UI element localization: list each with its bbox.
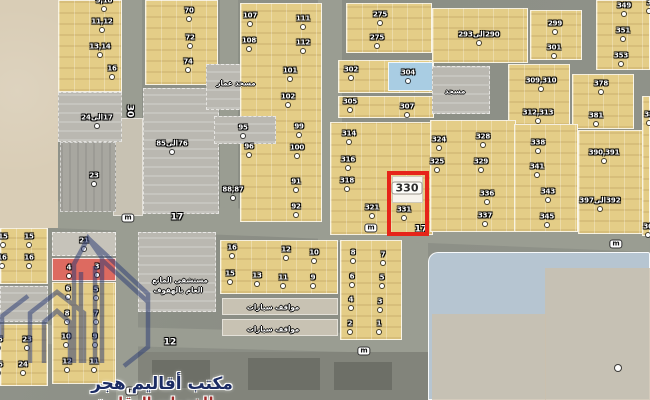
parcel-label: 13,14 (89, 44, 110, 51)
parcel-marker-dot (25, 346, 29, 350)
parcel-marker-dot (294, 188, 298, 192)
parcel-marker-dot (619, 62, 623, 66)
parcel-label: 23 (89, 173, 98, 180)
parcel-marker-dot (286, 103, 290, 107)
parcel-label: 316 (341, 157, 355, 164)
parcel-label: 100 (290, 145, 304, 152)
parcel-label: 101 (283, 68, 297, 75)
parcel-marker-dot (378, 308, 382, 312)
parcel-marker-dot (602, 159, 606, 163)
street-label: 12 (164, 339, 177, 348)
parcel-label: 9 (311, 275, 316, 282)
parcel-label: 16 (24, 255, 33, 262)
place-label: مسجد (445, 89, 466, 96)
parcel-marker-dot (248, 22, 252, 26)
parcel-label: 299 (548, 21, 562, 28)
parcel-marker-dot (351, 259, 355, 263)
parcel-marker-dot (477, 41, 481, 45)
parcel-marker-dot (82, 247, 86, 251)
map-block (220, 240, 338, 294)
parcel-marker-dot (301, 25, 305, 29)
parcel-label: 4 (67, 265, 72, 272)
parcel-label: 21 (79, 238, 88, 245)
parcel-label: 7 (381, 252, 386, 259)
parcel-marker-dot (65, 320, 69, 324)
parcel-label: 337 (478, 213, 492, 220)
map-block (578, 130, 650, 234)
parcel-marker-dot (311, 284, 315, 288)
parcel-label: 312,313 (523, 110, 553, 117)
parcel-marker-dot (0, 264, 4, 268)
parcel-marker-dot (92, 182, 96, 186)
parcel-marker-dot (65, 368, 69, 372)
parcel-marker-dot (94, 296, 98, 300)
parcel-label: 392الى397 (579, 198, 620, 205)
parcel-marker-dot (100, 28, 104, 32)
parcel-marker-dot (188, 44, 192, 48)
parcel-marker-dot (297, 133, 301, 137)
parcel-marker-dot (92, 368, 96, 372)
parcel-label: 96 (244, 144, 253, 151)
parcel-marker-dot (348, 108, 352, 112)
parcel-label: 7 (94, 311, 99, 318)
parcel-marker-dot (381, 261, 385, 265)
parcel-marker-dot (377, 330, 381, 334)
parcel-label: 9 (93, 334, 98, 341)
map-block (596, 0, 650, 70)
place-label: مسجد عمار (216, 81, 255, 88)
parcel-label: 70 (184, 8, 193, 15)
parcel-label: 4 (349, 297, 354, 304)
map-block (334, 362, 392, 390)
place-label: مواقف سيارات (247, 305, 299, 312)
place-label: العام بالهفوف (153, 288, 202, 295)
parcel-marker-dot (231, 196, 235, 200)
parcel-label: 16 (0, 255, 7, 262)
parcel-label: 99 (294, 124, 303, 131)
parcel-label: 111 (296, 16, 310, 23)
street-label: 17 (171, 214, 184, 223)
parcel-label: 351 (616, 28, 630, 35)
parcel-marker-dot (370, 214, 374, 218)
street-m-marker: m (122, 215, 133, 222)
parcel-label: 304 (401, 70, 415, 77)
parcel-marker-dot (479, 168, 483, 172)
parcel-marker-dot (348, 330, 352, 334)
parcel-label: 309,310 (526, 78, 556, 85)
parcel-label: 102 (281, 94, 295, 101)
parcel-label: 92 (291, 204, 300, 211)
parcel-marker-dot (646, 233, 650, 237)
parcel-label: 8 (65, 311, 70, 318)
parcel-label: 13 (252, 273, 261, 280)
parcel-label: 325 (430, 159, 444, 166)
parcel-marker-dot (66, 295, 70, 299)
parcel-marker-dot (294, 213, 298, 217)
map-block (138, 232, 216, 312)
parcel-label: 24 (18, 362, 27, 369)
parcel-label: 25 (0, 337, 3, 344)
parcel-label: 305 (343, 99, 357, 106)
parcel-label: 345 (540, 214, 554, 221)
parcel-marker-dot (102, 7, 106, 11)
parcel-label: 15 (0, 234, 8, 241)
parcel-marker-dot (406, 79, 410, 83)
parcel-marker-dot (21, 371, 25, 375)
parcel-marker-dot (346, 166, 350, 170)
parcel-label: 72 (185, 35, 194, 42)
parcel-marker-dot (622, 12, 626, 16)
highlighted-parcel-outline (387, 171, 429, 236)
parcel-label: 275 (370, 35, 384, 42)
parcel-marker-dot (621, 37, 625, 41)
parcel-label: 10 (309, 250, 318, 257)
parcel-label: 329 (474, 159, 488, 166)
parcel-label: 341 (530, 164, 544, 171)
parcel-label: 16 (107, 66, 116, 73)
parcel-label: 3 (378, 299, 383, 306)
satellite-parcel-map[interactable]: 9,1011,1213,141617الى2470727476الى852310… (0, 0, 650, 400)
parcel-marker-dot (64, 343, 68, 347)
parcel-label: 26 (0, 362, 3, 369)
parcel-marker-dot (170, 150, 174, 154)
parcel-marker-dot (288, 77, 292, 81)
parcel-marker-dot (378, 21, 382, 25)
map-block (388, 62, 433, 91)
parcel-marker-dot (405, 113, 409, 117)
parcel-label: 107 (243, 13, 257, 20)
map-block (508, 64, 570, 126)
parcel-label: 290الى293 (458, 32, 499, 39)
parcel-label: 381 (589, 113, 603, 120)
parcel-label: 5 (94, 287, 99, 294)
parcel-marker-dot (598, 207, 602, 211)
map-block (346, 3, 432, 53)
parcel-marker-dot (187, 17, 191, 21)
parcel-label: 11 (278, 275, 287, 282)
parcel-label: 302 (344, 67, 358, 74)
parcel-marker-dot (247, 47, 251, 51)
parcel-marker-dot (98, 53, 102, 57)
parcel-label: 112 (296, 40, 310, 47)
parcel-label: 108 (242, 38, 256, 45)
watermark-subtitle: للخدمات العقارية (96, 395, 213, 400)
parcel-label: 336 (480, 191, 494, 198)
parcel-marker-dot (483, 222, 487, 226)
parcel-marker-dot (67, 274, 71, 278)
parcel-label: 15 (24, 234, 33, 241)
parcel-label: 12 (62, 359, 71, 366)
parcel-label: 338 (531, 140, 545, 147)
parcel-label: 74 (183, 59, 192, 66)
parcel-marker-dot (1, 243, 5, 247)
parcel-label: 95 (238, 125, 247, 132)
parcel-marker-dot (345, 187, 349, 191)
map-block (0, 324, 48, 386)
parcel-label: 88,87 (222, 187, 243, 194)
parcel-marker-dot (94, 320, 98, 324)
parcel-label: 23 (22, 337, 31, 344)
parcel-marker-dot (295, 154, 299, 158)
parcel-marker-dot (284, 256, 288, 260)
parcel-label: 343 (541, 189, 555, 196)
parcel-marker-dot (435, 168, 439, 172)
parcel-marker-dot (536, 119, 540, 123)
parcel-label: 17الى24 (81, 115, 113, 122)
place-label: مستشفى المانع (152, 278, 208, 285)
parcel-marker-dot (281, 284, 285, 288)
parcel-label: 36 (643, 224, 650, 231)
map-block (248, 358, 320, 390)
place-label: مواقف سيارات (247, 327, 299, 334)
parcel-marker-dot (437, 146, 441, 150)
map-block (530, 10, 582, 60)
map-block (545, 268, 650, 400)
parcel-marker-dot (485, 200, 489, 204)
parcel-label: 11 (89, 359, 98, 366)
parcel-label: 314 (342, 131, 356, 138)
parcel-label: 301 (547, 45, 561, 52)
parcel-marker-dot (301, 49, 305, 53)
parcel-marker-dot (481, 143, 485, 147)
parcel-label: 6 (66, 286, 71, 293)
parcel-marker-dot (347, 140, 351, 144)
map-block (60, 142, 116, 212)
street-label: 30 (125, 105, 134, 118)
parcel-marker-dot (241, 134, 245, 138)
parcel-label: 324 (432, 137, 446, 144)
parcel-marker-dot (95, 124, 99, 128)
street-m-marker: m (365, 225, 376, 232)
parcel-label: 9,10 (96, 0, 112, 5)
map-block (0, 286, 48, 322)
map-block (0, 0, 58, 228)
street-m-marker: m (610, 241, 621, 248)
parcel-marker-dot (95, 273, 99, 277)
parcel-marker-dot (380, 284, 384, 288)
parcel-marker-dot (27, 243, 31, 247)
parcel-marker-dot (230, 254, 234, 258)
parcel-marker-dot (27, 264, 31, 268)
parcel-label: 390,391 (589, 150, 619, 157)
parcel-label: 1 (377, 321, 382, 328)
parcel-marker-dot (546, 198, 550, 202)
parcel-marker-dot (535, 173, 539, 177)
parcel-marker-dot (247, 153, 251, 157)
parcel-marker-dot (536, 149, 540, 153)
parcel-label: 12 (281, 247, 290, 254)
parcel-marker-dot (552, 54, 556, 58)
parcel-label: 91 (291, 179, 300, 186)
parcel-marker-dot (545, 223, 549, 227)
parcel-label: 16 (227, 245, 236, 252)
parcel-marker-dot (594, 122, 598, 126)
parcel-label: 349 (617, 3, 631, 10)
parcel-label: 321 (365, 205, 379, 212)
parcel-marker-dot (93, 343, 97, 347)
parcel-label: 378 (594, 81, 608, 88)
parcel-label: 11,12 (91, 19, 112, 26)
parcel-label: 76الى85 (156, 141, 188, 148)
parcel-marker-dot (553, 30, 557, 34)
parcel-marker-dot (615, 365, 621, 371)
parcel-label: 3 (95, 264, 100, 271)
parcel-label: 2 (348, 321, 353, 328)
parcel-label: 5 (380, 275, 385, 282)
parcel-label: 6 (350, 274, 355, 281)
parcel-label: 15 (225, 271, 234, 278)
parcel-label: 307 (400, 104, 414, 111)
parcel-label: 275 (373, 12, 387, 19)
parcel-label: 3 (647, 0, 650, 7)
map-block (432, 314, 546, 400)
parcel-marker-dot (110, 75, 114, 79)
parcel-label: 328 (476, 134, 490, 141)
parcel-label: 353 (614, 53, 628, 60)
parcel-marker-dot (599, 90, 603, 94)
map-block (52, 258, 116, 281)
parcel-marker-dot (349, 306, 353, 310)
parcel-marker-dot (186, 68, 190, 72)
parcel-marker-dot (539, 87, 543, 91)
parcel-marker-dot (255, 282, 259, 286)
street-m-marker: m (358, 348, 369, 355)
parcel-marker-dot (228, 280, 232, 284)
parcel-label: 10 (61, 334, 70, 341)
watermark-title: مكتب أقاليم هجر (91, 374, 233, 394)
parcel-marker-dot (312, 259, 316, 263)
parcel-marker-dot (350, 283, 354, 287)
parcel-label: 38 (644, 112, 650, 119)
parcel-marker-dot (375, 44, 379, 48)
parcel-label: 318 (340, 178, 354, 185)
parcel-label: 8 (351, 250, 356, 257)
parcel-marker-dot (349, 76, 353, 80)
